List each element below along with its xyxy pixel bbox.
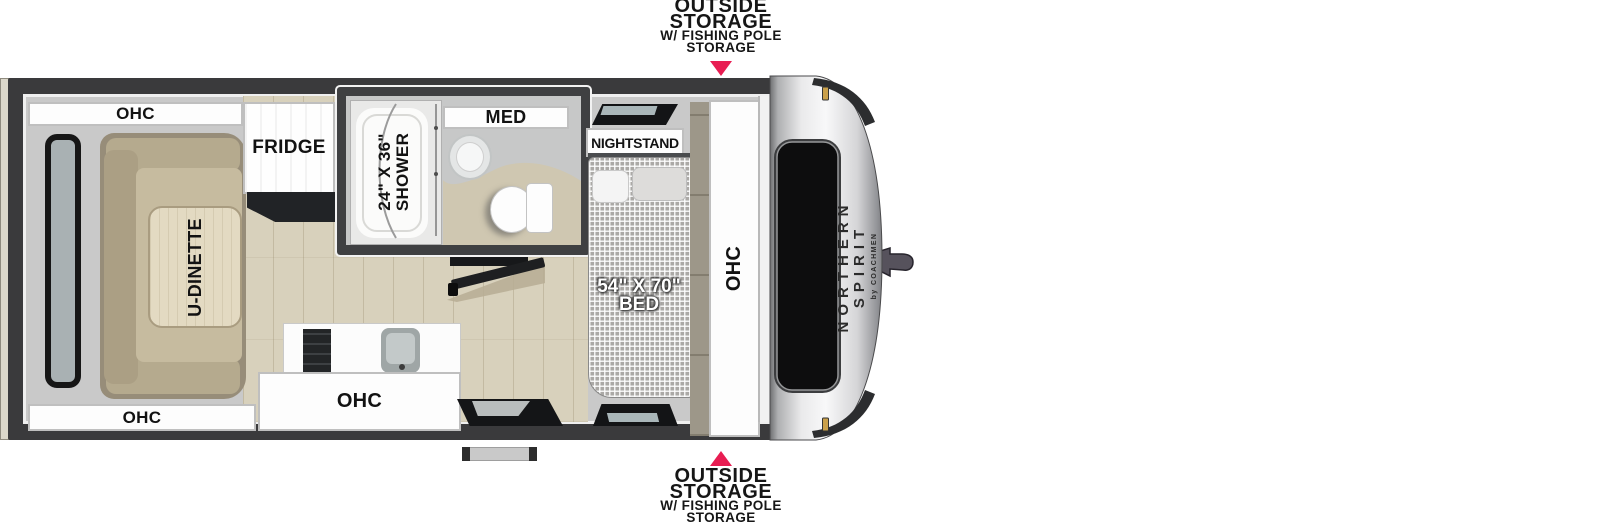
shower-size-label: 24" X 36" (376, 92, 394, 252)
brand-model-line1: NORTHERN (837, 200, 851, 333)
marker-light-top-icon (823, 87, 829, 100)
bathroom-sink-bowl (456, 142, 484, 172)
step-foot-left (462, 447, 470, 461)
bedroom-storage-divider (690, 102, 709, 436)
callout-top: OUTSIDE STORAGE W/ FISHING POLE STORAGE (561, 0, 881, 54)
ohc-cabinet-dinette-bottom: OHC (28, 404, 256, 431)
kitchen-faucet (399, 364, 405, 370)
roof-vent-front-lid (601, 106, 658, 115)
toilet-tank (526, 183, 553, 233)
ohc-kitchen-label: OHC (337, 390, 382, 413)
brand-model-line2: SPIRIT (853, 224, 867, 308)
bed-word-label: BED (574, 296, 704, 314)
ohc-cabinet-bedroom: OHC (709, 100, 760, 437)
brand-byline: by COACHMEN (871, 233, 878, 300)
med-cabinet: MED (443, 106, 569, 129)
callout-arrow-up-icon (710, 451, 732, 466)
ohc-dinette-bottom-label: OHC (123, 408, 162, 428)
callout-top-line4: STORAGE (561, 42, 881, 54)
nightstand-label: NIGHTSTAND (591, 135, 679, 151)
brand-wordmark: NORTHERN SPIRIT by COACHMEN (836, 181, 876, 351)
kitchen-sink-basin (386, 333, 415, 364)
marker-light-bottom-icon (823, 418, 829, 431)
med-label: MED (486, 107, 527, 128)
dinette-table-label: U-DINETTE (185, 218, 206, 317)
shower-label: 24" X 36" SHOWER (376, 92, 416, 252)
fridge: FRIDGE (243, 102, 335, 194)
roof-vent-rear-lid (607, 413, 659, 422)
entry-step-outside (462, 447, 537, 461)
cooktop (303, 329, 331, 373)
front-window (777, 142, 838, 390)
step-foot-right (529, 447, 537, 461)
rear-window (45, 134, 81, 388)
sofa-cushion-left (104, 150, 138, 384)
ohc-dinette-top-label: OHC (116, 104, 155, 124)
pillow-left (592, 170, 629, 203)
shower-word-label: SHOWER (394, 92, 412, 252)
callout-bottom-line4: STORAGE (561, 512, 881, 524)
fridge-label: FRIDGE (252, 137, 326, 159)
callout-arrow-down-icon (710, 61, 732, 76)
dinette-table: U-DINETTE (148, 206, 242, 328)
callout-bottom: OUTSIDE STORAGE W/ FISHING POLE STORAGE (561, 468, 881, 524)
ohc-cabinet-dinette-top: OHC (28, 102, 243, 126)
floorplan-canvas: OUTSIDE STORAGE W/ FISHING POLE STORAGE … (0, 0, 1600, 532)
entry-door-handle (448, 283, 458, 296)
pillow-right (632, 167, 687, 201)
ohc-cabinet-kitchen: OHC (258, 372, 461, 431)
bed-label: 54" X 70" BED (574, 278, 704, 314)
ohc-bedroom-label: OHC (723, 246, 746, 291)
